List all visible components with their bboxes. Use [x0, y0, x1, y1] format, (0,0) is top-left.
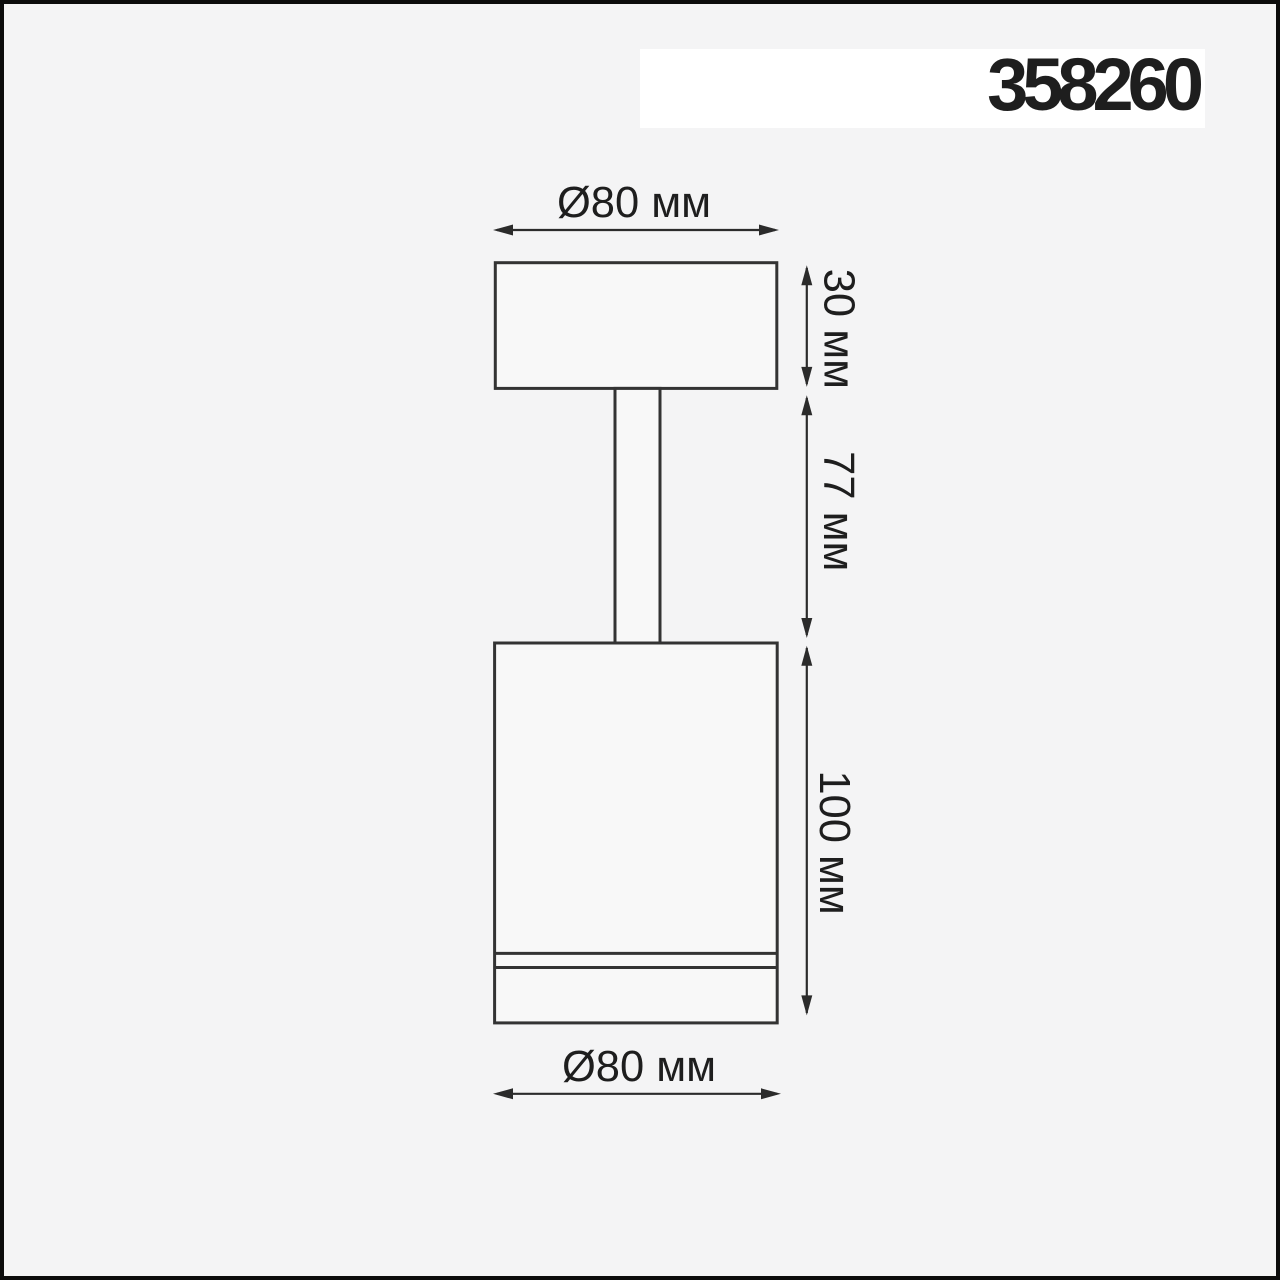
svg-text:77 мм: 77 мм: [814, 451, 862, 571]
svg-text:Ø80 мм: Ø80 мм: [562, 1043, 716, 1091]
svg-text:358260: 358260: [987, 43, 1202, 126]
svg-text:100 мм: 100 мм: [810, 770, 858, 914]
svg-text:30 мм: 30 мм: [814, 269, 862, 389]
svg-text:Ø80 мм: Ø80 мм: [557, 179, 711, 227]
